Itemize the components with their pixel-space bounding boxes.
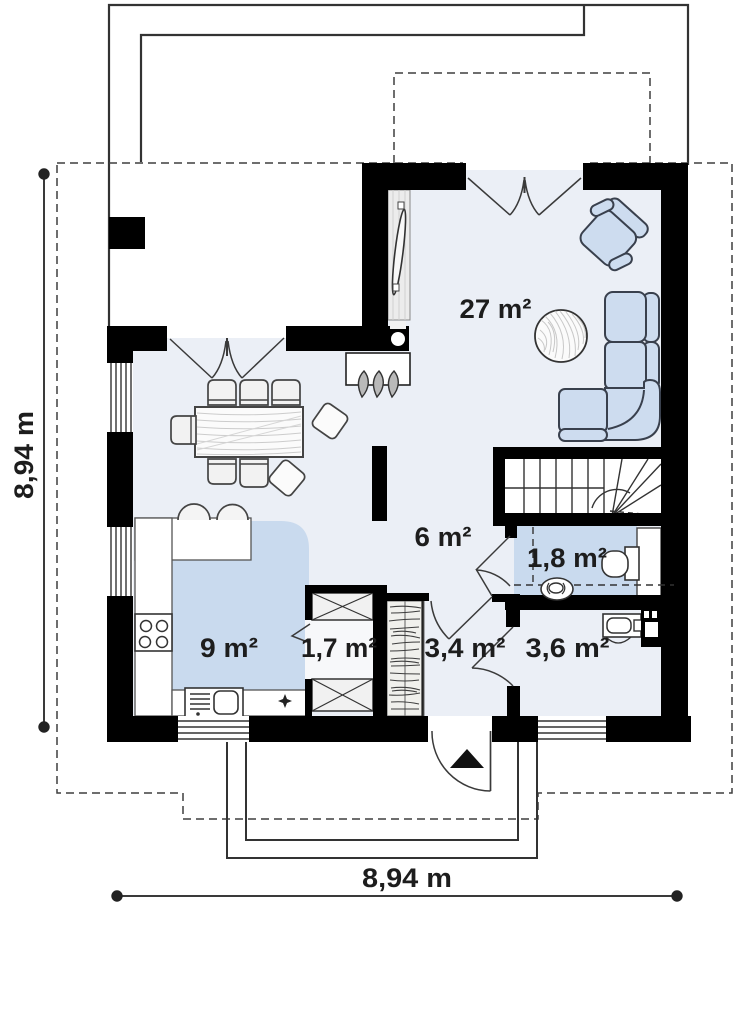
svg-text:3,4 m²: 3,4 m² — [425, 633, 506, 663]
svg-text:9 m²: 9 m² — [200, 633, 258, 663]
svg-text:1,7 m²: 1,7 m² — [301, 633, 377, 663]
svg-text:8,94 m: 8,94 m — [362, 863, 452, 893]
svg-text:3,6 m²: 3,6 m² — [526, 633, 610, 663]
svg-text:1,8 m²: 1,8 m² — [527, 543, 607, 573]
svg-text:27 m²: 27 m² — [460, 294, 532, 324]
svg-text:6 m²: 6 m² — [415, 522, 472, 552]
svg-text:8,94 m: 8,94 m — [9, 411, 39, 499]
